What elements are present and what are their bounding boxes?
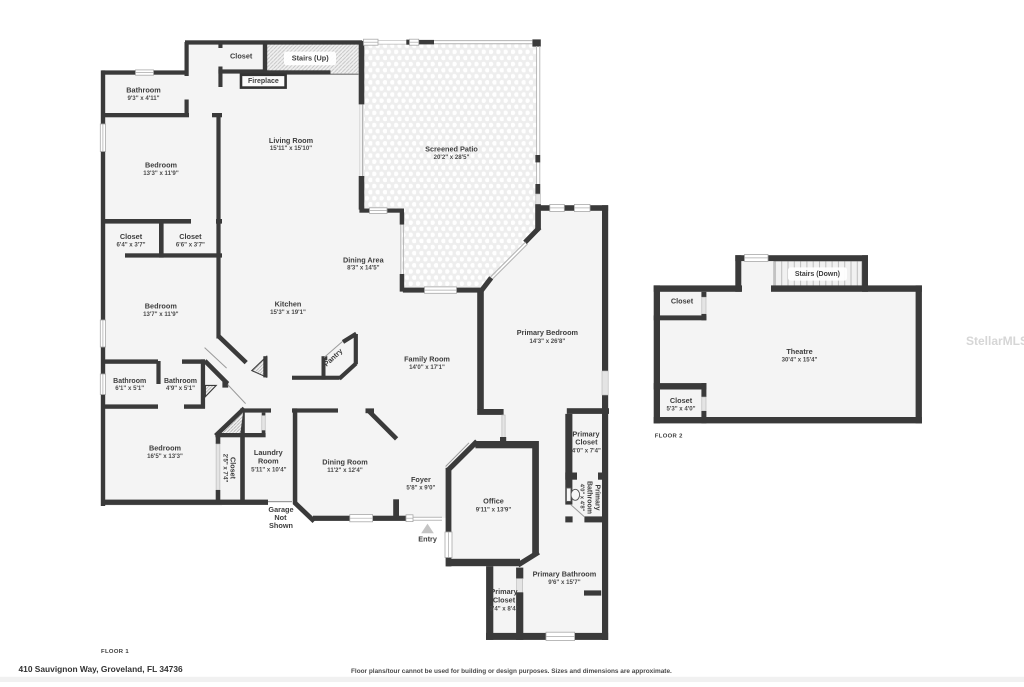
svg-text:6'1" x 5'1": 6'1" x 5'1" [115,385,144,392]
svg-text:9'3" x 4'11": 9'3" x 4'11" [127,95,159,102]
svg-text:StellarMLS: StellarMLS [966,334,1024,348]
svg-text:Kitchen: Kitchen [275,300,302,309]
svg-text:11'2" x 12'4": 11'2" x 12'4" [327,467,363,474]
svg-text:Bedroom: Bedroom [145,161,178,170]
svg-text:Dining Area: Dining Area [343,255,385,264]
svg-text:4'0" x 4'8": 4'0" x 4'8" [578,484,584,512]
svg-text:Bathroom: Bathroom [113,378,146,385]
svg-text:Dining Room: Dining Room [322,457,368,466]
svg-text:Closet: Closet [671,296,694,305]
svg-text:Primary Bedroom: Primary Bedroom [517,328,579,337]
svg-text:14'3" x 26'8": 14'3" x 26'8" [530,338,566,345]
svg-text:Bathroom: Bathroom [585,481,592,514]
svg-text:Foyer: Foyer [411,475,431,484]
svg-text:Closet: Closet [670,396,693,405]
svg-text:Stairs (Down): Stairs (Down) [795,271,840,278]
svg-text:Entry: Entry [418,535,438,544]
svg-text:2'5" x 7'4": 2'5" x 7'4" [222,454,228,483]
svg-text:13'3" x 11'9": 13'3" x 11'9" [143,170,179,177]
svg-text:Family Room: Family Room [404,355,450,364]
svg-text:Bathroom: Bathroom [164,378,197,385]
svg-text:Room: Room [258,456,279,465]
svg-text:Primary: Primary [593,484,600,510]
svg-text:Stairs (Up): Stairs (Up) [292,53,329,62]
svg-text:20'2" x 28'5": 20'2" x 28'5" [434,154,470,161]
svg-text:Closet: Closet [230,51,253,60]
svg-text:9'11" x 13'9": 9'11" x 13'9" [476,506,512,513]
svg-text:Primary Bathroom: Primary Bathroom [533,569,597,578]
svg-text:Bedroom: Bedroom [149,443,182,452]
svg-text:4'0" x 7'4": 4'0" x 7'4" [572,448,601,455]
svg-text:Closet: Closet [228,457,237,480]
svg-text:Theatre: Theatre [786,347,812,356]
svg-text:Closet: Closet [493,596,516,605]
svg-text:4'9" x 5'1": 4'9" x 5'1" [166,385,195,392]
svg-text:3'4" x 8'4": 3'4" x 8'4" [489,606,518,613]
svg-text:410 Sauvignon Way, Groveland,: 410 Sauvignon Way, Groveland, FL 34736 [19,664,183,674]
svg-text:Closet: Closet [575,438,598,447]
svg-text:Living Room: Living Room [269,136,314,145]
svg-text:Screened Patio: Screened Patio [425,145,478,154]
svg-text:Bathroom: Bathroom [126,86,161,95]
svg-text:30'4" x 15'4": 30'4" x 15'4" [782,357,818,364]
svg-text:Closet: Closet [179,232,202,241]
svg-text:16'5" x 13'3": 16'5" x 13'3" [147,453,183,460]
svg-text:Floor plans/tour cannot be use: Floor plans/tour cannot be used for buil… [351,668,672,675]
svg-text:13'7" x 11'9": 13'7" x 11'9" [143,311,179,318]
svg-text:8'3" x 14'5": 8'3" x 14'5" [347,265,380,272]
svg-text:Closet: Closet [120,232,143,241]
svg-text:Fireplace: Fireplace [248,78,279,85]
svg-text:Bedroom: Bedroom [145,301,178,310]
svg-text:5'8" x 9'0": 5'8" x 9'0" [406,485,435,492]
svg-text:5'3" x 4'0": 5'3" x 4'0" [666,405,695,412]
svg-text:9'6" x 15'7": 9'6" x 15'7" [548,579,581,586]
svg-text:6'4" x 3'7": 6'4" x 3'7" [116,241,145,248]
svg-text:14'0" x 17'1": 14'0" x 17'1" [409,364,445,371]
svg-text:6'6" x 3'7": 6'6" x 3'7" [176,241,205,248]
svg-text:FLOOR 2: FLOOR 2 [655,434,683,440]
svg-text:Shown: Shown [269,521,293,530]
svg-text:5'11" x 10'4": 5'11" x 10'4" [251,467,287,474]
svg-text:15'11" x 15'10": 15'11" x 15'10" [270,145,312,152]
svg-text:15'3" x 19'1": 15'3" x 19'1" [270,309,306,316]
svg-text:Office: Office [483,497,504,506]
svg-text:FLOOR 1: FLOOR 1 [101,649,129,655]
